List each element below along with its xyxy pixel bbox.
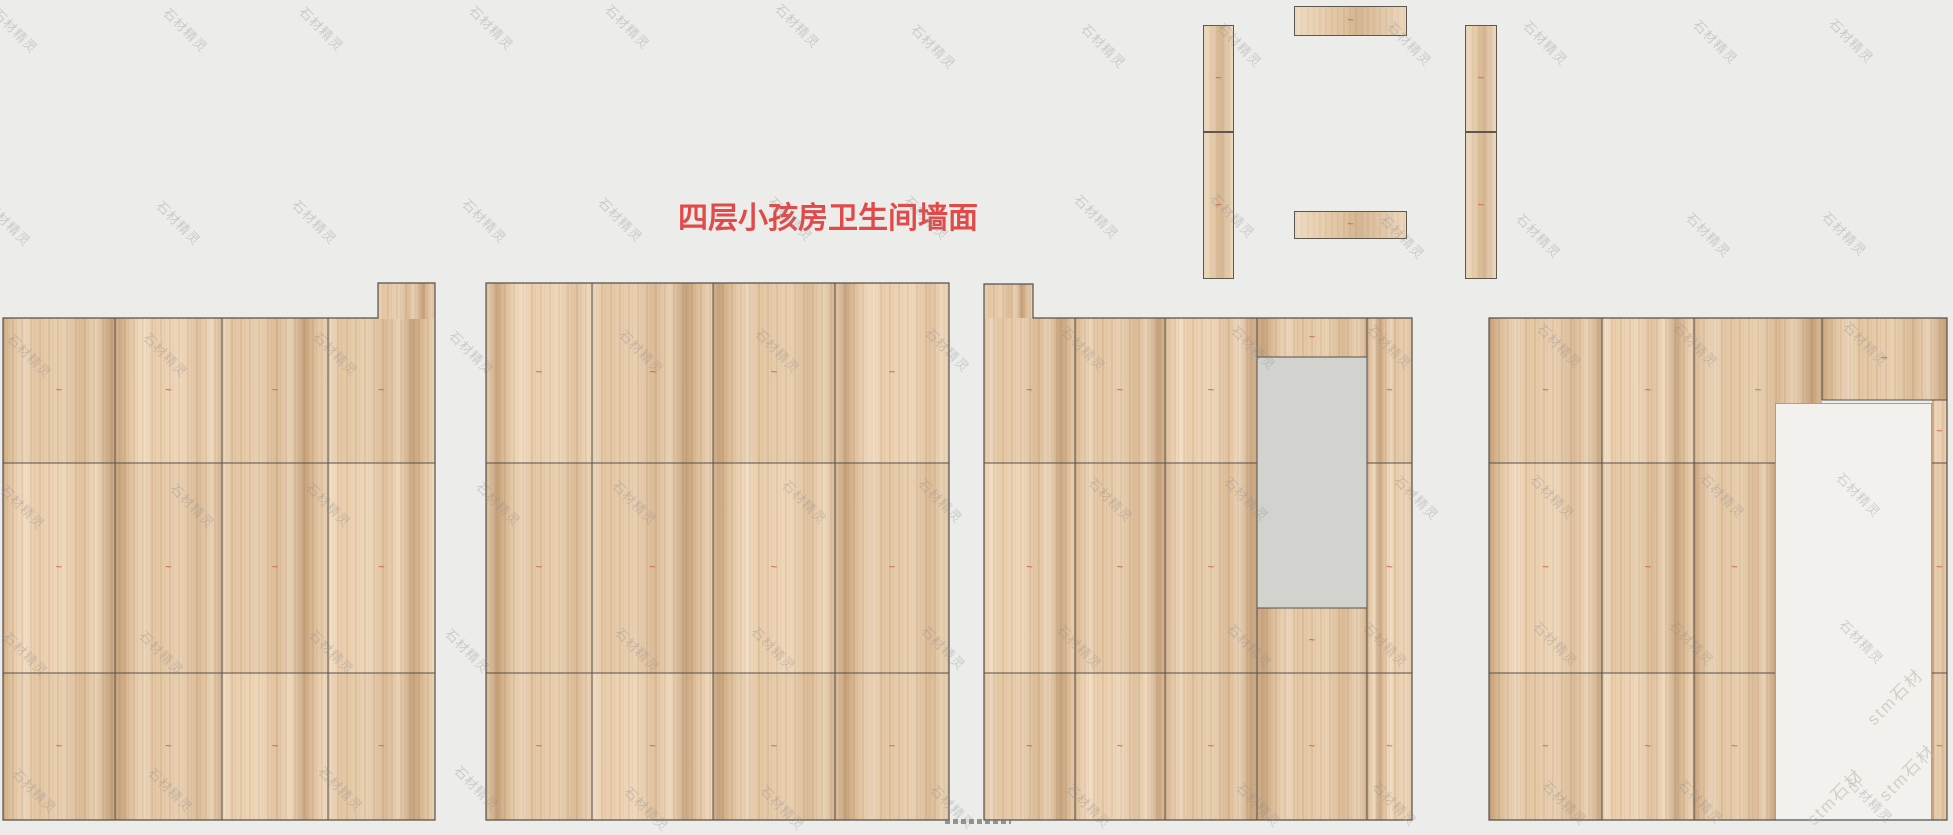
slab-piece <box>835 673 949 820</box>
slab-piece <box>1367 463 1412 673</box>
slab-piece <box>3 318 115 463</box>
watermark-text: 石材精灵 <box>772 0 825 52</box>
elevation-drawing-canvas: ~~~~~~~~~~~~~~~~~~~~~~~~~~~~~~~~~~~~~~~~… <box>0 0 1953 828</box>
niche-opening <box>1257 357 1367 608</box>
slab-piece <box>1602 673 1694 820</box>
slab-piece <box>1694 463 1775 673</box>
watermark-text: 石材精灵 <box>296 2 349 55</box>
slab-piece <box>1257 318 1367 357</box>
trim-piece <box>1465 132 1497 279</box>
slab-piece <box>984 673 1075 820</box>
watermark-text: 石材精灵 <box>908 20 961 73</box>
watermark-text: 石材精灵 <box>160 3 213 56</box>
slab-piece <box>1367 318 1412 463</box>
slab-piece <box>1367 673 1412 820</box>
slab-piece <box>3 673 115 820</box>
watermark-text: 石材精灵 <box>289 195 342 248</box>
slab-piece <box>984 318 1075 463</box>
watermark-text: 石材精灵 <box>1826 14 1879 67</box>
slab-piece <box>115 318 222 463</box>
slab-piece <box>1075 673 1165 820</box>
slab-piece <box>1602 463 1694 673</box>
trim-piece <box>1203 132 1234 279</box>
watermark-text: 石材精灵 <box>1071 190 1124 243</box>
watermark-text: 石材精灵 <box>1690 15 1743 68</box>
trim-piece <box>1203 25 1234 132</box>
watermark-text: 石材精灵 <box>1683 208 1736 261</box>
slab-piece <box>713 673 835 820</box>
slab-piece <box>222 318 328 463</box>
slab-piece <box>984 284 1033 318</box>
watermark-text: 石材精灵 <box>1819 207 1872 260</box>
slab-piece <box>378 283 435 319</box>
slab-piece <box>592 283 713 463</box>
slab-piece <box>1694 673 1775 820</box>
slab-piece <box>486 463 592 673</box>
slab-piece <box>713 463 835 673</box>
slab-piece <box>1932 673 1947 820</box>
footer-caption <box>945 819 1011 824</box>
slab-piece <box>115 463 222 673</box>
slab-piece <box>592 673 713 820</box>
slab-piece <box>1489 673 1602 820</box>
slab-piece <box>1075 318 1165 463</box>
slab-piece <box>984 463 1075 673</box>
slab-piece <box>1602 318 1694 463</box>
slab-piece <box>592 463 713 673</box>
door-opening <box>1775 403 1932 820</box>
watermark-text: 石材精灵 <box>1513 209 1566 262</box>
slab-piece <box>222 673 328 820</box>
watermark-text: 石材精灵 <box>153 196 206 249</box>
slab-piece <box>1932 463 1947 673</box>
slab-piece <box>486 673 592 820</box>
slab-piece <box>1489 318 1602 463</box>
slab-piece <box>835 283 949 463</box>
watermark-text: 石材精灵 <box>1078 19 1131 72</box>
slab-piece <box>328 463 435 673</box>
watermark-text: 石材精灵 <box>602 0 655 53</box>
slab-piece <box>1257 673 1367 820</box>
slab-piece <box>1165 318 1257 463</box>
slab-piece <box>3 463 115 673</box>
watermark-text: 石材精灵 <box>459 194 512 247</box>
slab-piece <box>1165 673 1257 820</box>
watermark-text: 石材精灵 <box>1520 16 1573 69</box>
trim-piece <box>1465 25 1497 132</box>
slab-piece <box>1075 463 1165 673</box>
slab-piece <box>115 673 222 820</box>
slab-piece <box>222 463 328 673</box>
watermark-text: 石材精灵 <box>0 197 36 250</box>
slab-piece <box>486 283 592 463</box>
slab-piece <box>328 318 435 463</box>
drawing-title: 四层小孩房卫生间墙面 <box>678 204 988 234</box>
watermark-text: 石材精灵 <box>0 4 43 57</box>
slab-piece <box>835 463 949 673</box>
slab-piece <box>713 283 835 463</box>
slab-piece <box>1165 463 1257 673</box>
watermark-text: 石材精灵 <box>466 1 519 54</box>
trim-piece <box>1294 6 1407 36</box>
trim-piece <box>1294 211 1407 239</box>
slab-piece <box>328 673 435 820</box>
slab-piece <box>1257 608 1367 673</box>
watermark-text: 石材精灵 <box>595 193 648 246</box>
slab-piece <box>1932 400 1947 463</box>
slab-piece <box>1822 318 1947 400</box>
slab-piece <box>1489 463 1602 673</box>
